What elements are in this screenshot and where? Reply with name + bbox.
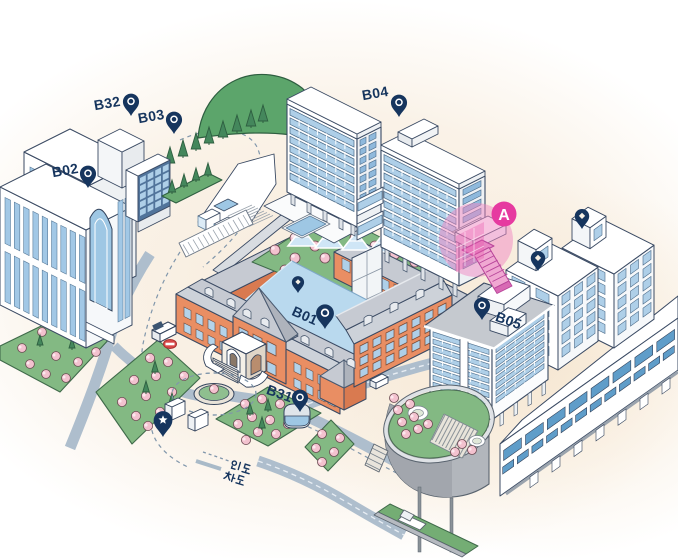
- svg-text:A: A: [498, 207, 510, 224]
